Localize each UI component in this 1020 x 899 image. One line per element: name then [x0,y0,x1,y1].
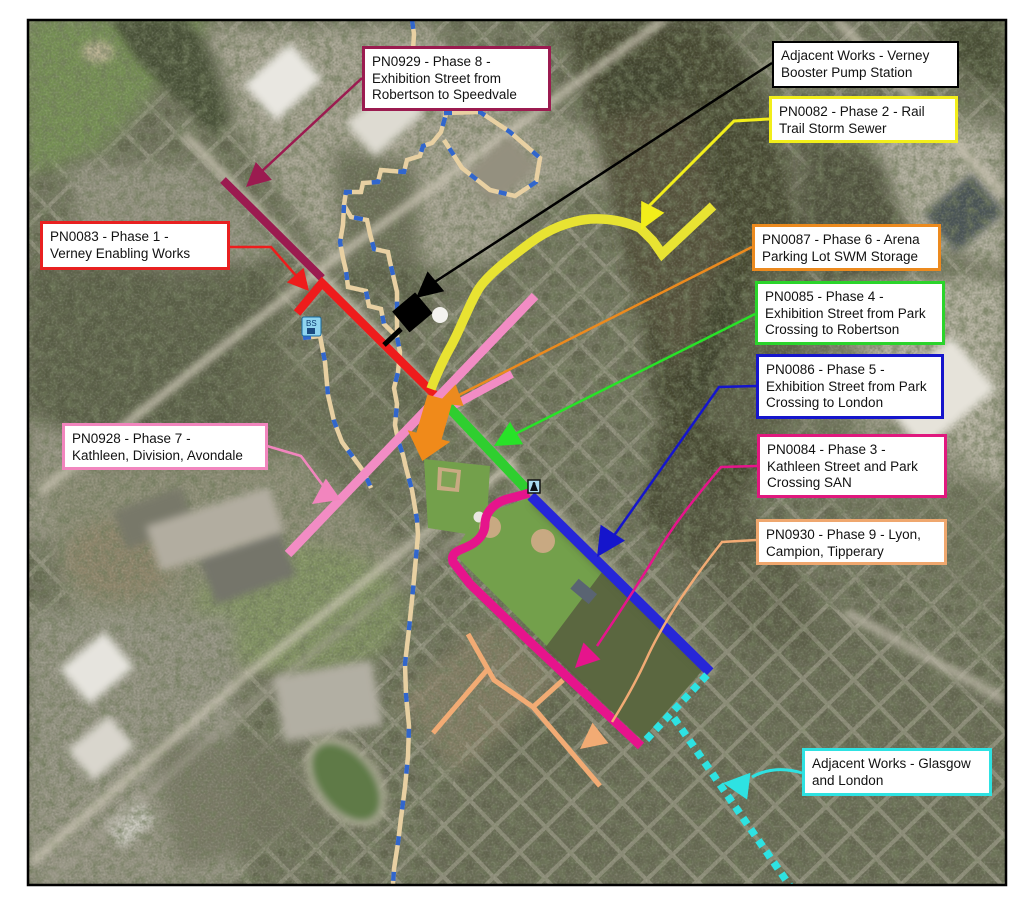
svg-text:BS: BS [306,319,317,328]
